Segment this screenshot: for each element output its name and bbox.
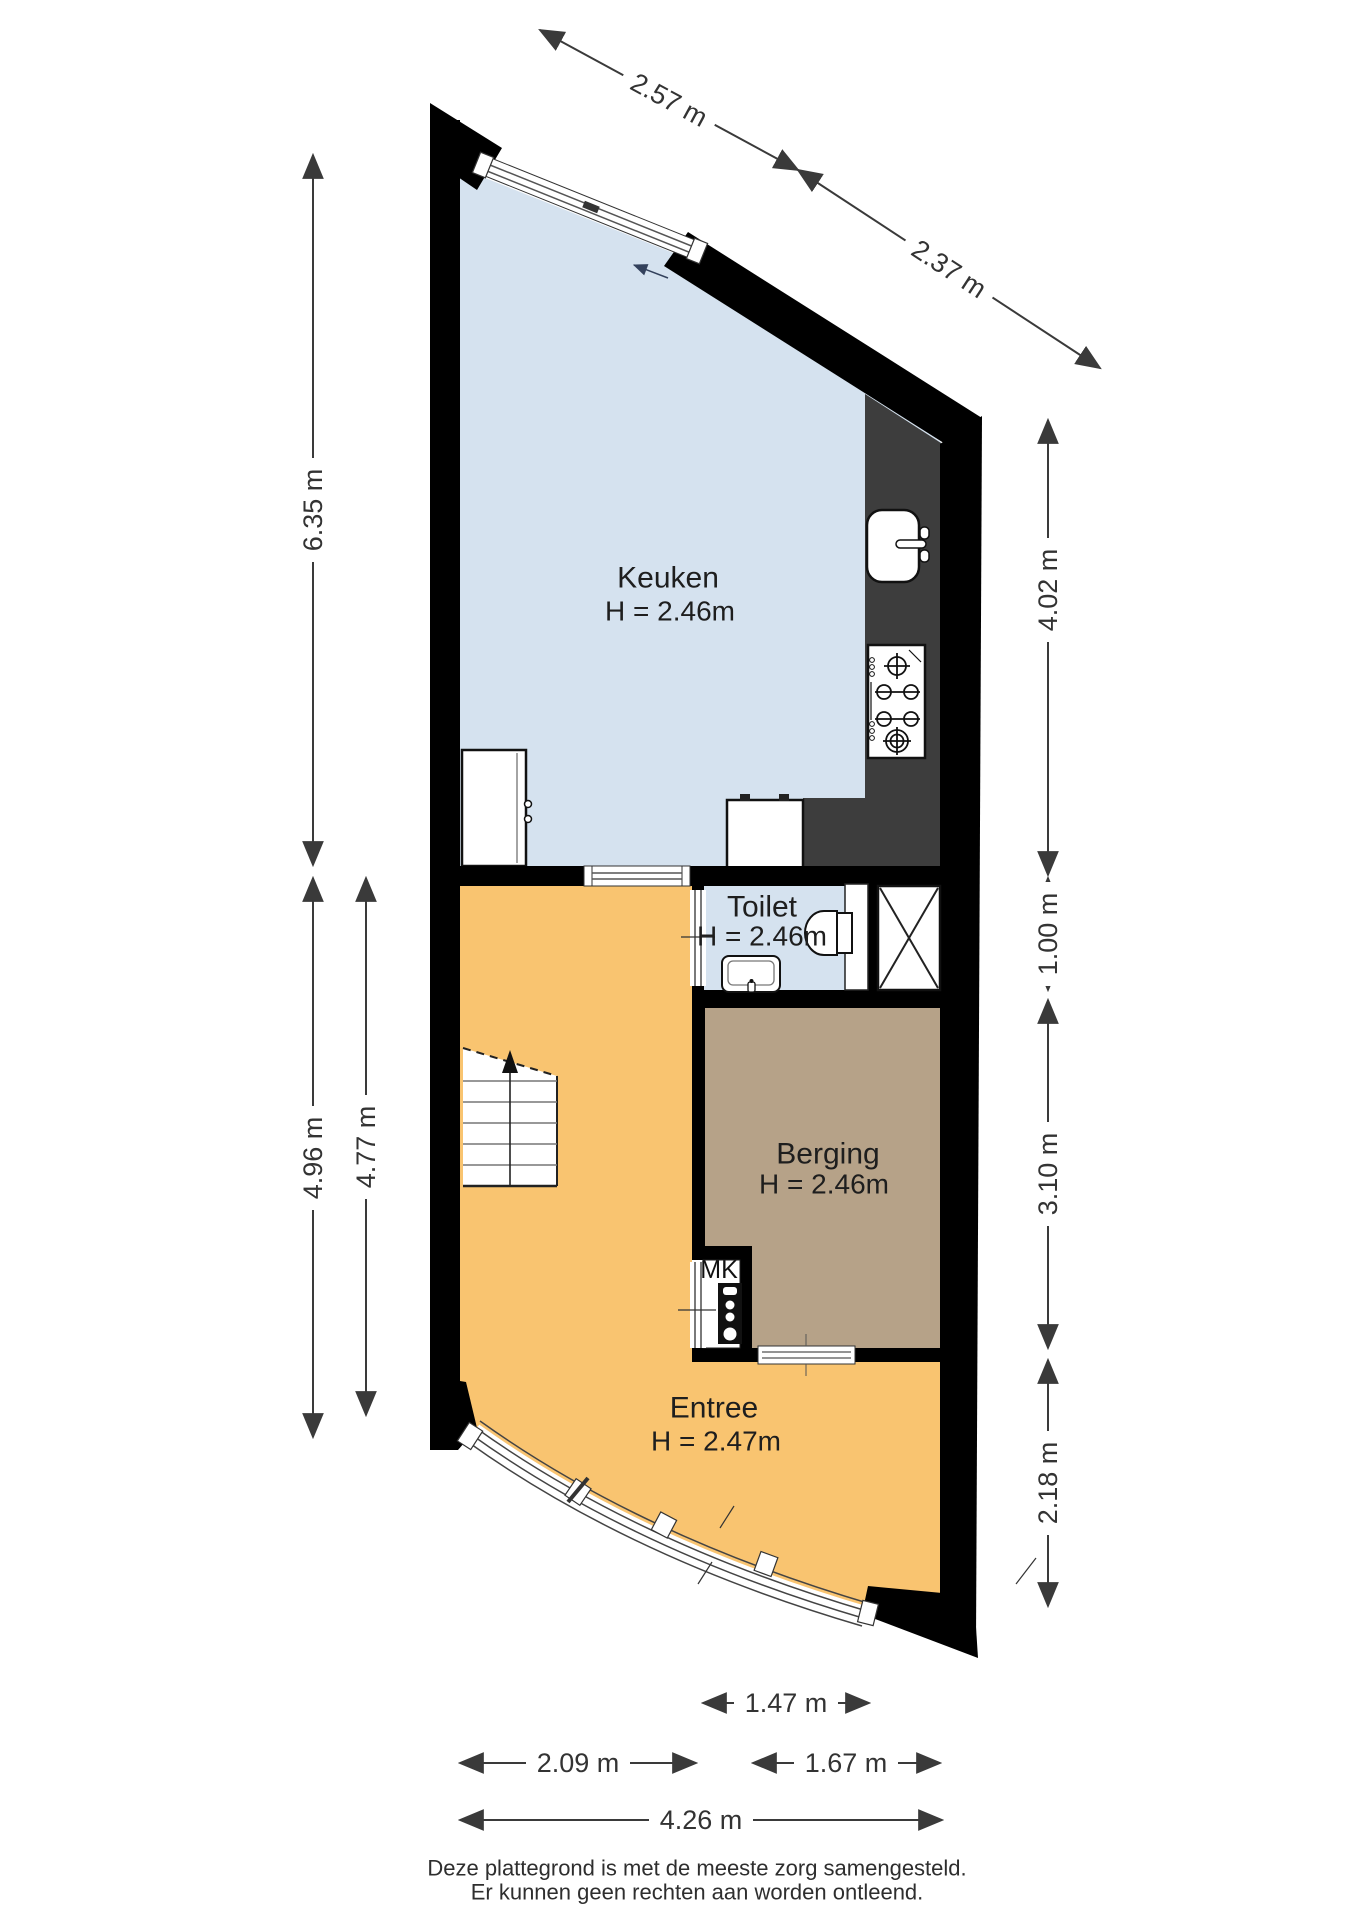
dim-label-bottom-right: 1.67 m	[794, 1746, 898, 1780]
sink-icon	[867, 510, 929, 582]
right-wall	[940, 416, 982, 1642]
mk-label: MK	[700, 1256, 738, 1284]
dim-label-top-right: 2.37 m	[896, 226, 1002, 311]
svg-text:1.00 m: 1.00 m	[1033, 893, 1063, 976]
entree-height: H = 2.47m	[651, 1426, 781, 1457]
svg-text:4.77 m: 4.77 m	[351, 1106, 381, 1189]
kitchen-south-wall	[460, 866, 941, 886]
fridge-cabinet	[462, 750, 532, 866]
dim-label-right-entree: 2.18 m	[1031, 1431, 1065, 1535]
floorplan-drawing: 2.57 m 2.37 m 6.35 m 4.96 m 4.77 m 4.02 …	[0, 0, 1358, 1920]
shaft-west-wall	[868, 886, 878, 990]
dim-label-bottom-left: 2.09 m	[526, 1746, 630, 1780]
footer-line-1: Deze plattegrond is met de meeste zorg s…	[427, 1856, 966, 1881]
berging-height: H = 2.46m	[759, 1169, 889, 1200]
dim-label-left-lower-inner: 4.77 m	[349, 1095, 383, 1199]
dim-label-right-kitchen: 4.02 m	[1031, 538, 1065, 642]
left-wall	[430, 120, 460, 1448]
dishwasher-unit	[727, 794, 803, 868]
svg-text:2.09 m: 2.09 m	[537, 1748, 620, 1778]
shaft-cross-icon	[878, 886, 940, 990]
dim-label-right-berging: 3.10 m	[1031, 1122, 1065, 1226]
keuken-height: H = 2.46m	[605, 596, 735, 627]
dim-label-bottom-total: 4.26 m	[649, 1803, 753, 1837]
floorplan-page: 2.57 m 2.37 m 6.35 m 4.96 m 4.77 m 4.02 …	[0, 0, 1358, 1920]
bottom-right-corner-wall	[862, 1586, 978, 1658]
dim-label-left-lower-outer: 4.96 m	[296, 1106, 330, 1210]
kitchen-interior-window	[584, 866, 690, 886]
entree-label: Entree	[670, 1392, 758, 1425]
berging-label: Berging	[776, 1138, 879, 1171]
toilet-label: Toilet	[727, 891, 798, 924]
stove-icon	[868, 645, 925, 758]
meter-panel-icon	[718, 1283, 742, 1344]
svg-text:3.10 m: 3.10 m	[1033, 1133, 1063, 1216]
svg-text:6.35 m: 6.35 m	[298, 469, 328, 552]
toilet-height: H = 2.46m	[697, 921, 827, 952]
footer-line-2: Er kunnen geen rechten aan worden ontlee…	[471, 1880, 924, 1905]
svg-text:1.47 m: 1.47 m	[745, 1688, 828, 1718]
washbasin-icon	[722, 956, 780, 992]
dim-label-right-toilet: 1.00 m	[1031, 882, 1065, 986]
svg-text:2.18 m: 2.18 m	[1033, 1442, 1063, 1525]
svg-text:4.26 m: 4.26 m	[660, 1805, 743, 1835]
berging-west-wall	[692, 1008, 705, 1248]
svg-text:4.02 m: 4.02 m	[1033, 549, 1063, 632]
dim-label-bottom-inner: 1.47 m	[734, 1686, 838, 1720]
svg-text:1.67 m: 1.67 m	[805, 1748, 888, 1778]
dim-label-top-left: 2.57 m	[615, 60, 723, 140]
svg-text:4.96 m: 4.96 m	[298, 1117, 328, 1200]
dim-label-left-total: 6.35 m	[296, 458, 330, 562]
svg-text:2.57 m: 2.57 m	[626, 67, 713, 133]
keuken-label: Keuken	[617, 562, 719, 595]
